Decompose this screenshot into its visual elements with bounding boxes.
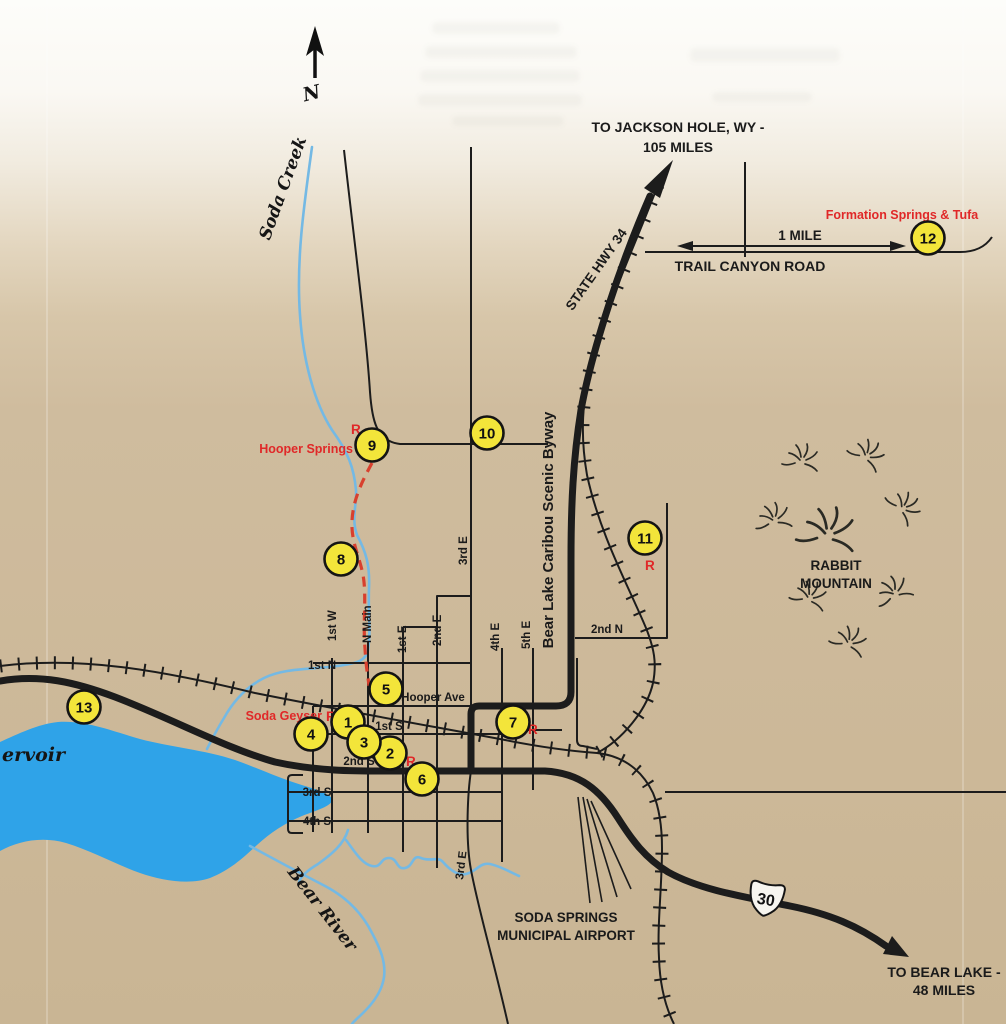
marker-11: 11	[629, 522, 662, 555]
jackson-hole-label-1: TO JACKSON HOLE, WY -	[592, 119, 765, 135]
street-label-1st-e: 1st E	[397, 625, 409, 653]
scale-arrow-left	[677, 241, 693, 251]
soda-springs-map: N 30 TO JACKSON HOLE, WY - 105 MILES TO …	[0, 0, 1006, 1024]
bear-lake-label-1: TO BEAR LAKE -	[887, 964, 1001, 980]
street-label-n-main: N Main	[362, 605, 374, 643]
hooper-springs-road	[344, 150, 548, 444]
street-label-2nd-n: 2nd N	[591, 624, 623, 636]
reservoir-label: ervoir	[2, 744, 67, 766]
street-label-1st-n: 1st N	[308, 660, 336, 672]
marker-5: 5	[370, 673, 403, 706]
bear-lake-label-2: 48 MILES	[913, 982, 975, 998]
marker-4: 4	[295, 718, 328, 751]
north-arrow: N	[300, 26, 324, 107]
marker-3: 3	[348, 726, 381, 759]
rabbit-mountain-marks	[751, 433, 925, 657]
byway-label: Bear Lake Caribou Scenic Byway	[540, 411, 557, 648]
scale-arrow-right	[890, 241, 906, 251]
map-canvas: N 30 TO JACKSON HOLE, WY - 105 MILES TO …	[0, 0, 1006, 1024]
street-label-2nd-e: 2nd E	[432, 614, 444, 646]
marker-6: 6	[406, 763, 439, 796]
street-label-1st-w: 1st W	[327, 610, 339, 641]
svg-text:13: 13	[76, 700, 93, 717]
bear-lake-arrowhead	[883, 936, 909, 957]
trail-canyon-road-label: TRAIL CANYON ROAD	[675, 258, 826, 274]
marker-9: 9	[356, 429, 389, 462]
svg-text:5: 5	[382, 682, 390, 699]
street-label-3rd-e-north: 3rd E	[458, 536, 470, 565]
airport-runways	[578, 797, 631, 903]
street-label-5th-e: 5th E	[521, 621, 533, 649]
svg-text:6: 6	[418, 772, 426, 789]
street-label-4th-s: 4th S	[303, 816, 331, 828]
svg-text:1: 1	[344, 715, 352, 732]
svg-text:8: 8	[337, 552, 345, 569]
creek-meander	[346, 840, 519, 876]
byway-highway	[471, 196, 650, 771]
svg-text:4: 4	[307, 727, 316, 744]
street-label-3rd-e-south: 3rd E	[454, 850, 469, 880]
airport-label-1: SODA SPRINGS	[514, 910, 617, 925]
svg-text:11: 11	[637, 531, 653, 548]
formation-springs-label: Formation Springs & Tufa	[826, 208, 980, 222]
us30-shield: 30	[746, 880, 785, 919]
rabbit-mountain-label-2: MOUNTAIN	[800, 576, 872, 591]
minor-roads	[288, 147, 1006, 1024]
svg-text:9: 9	[368, 438, 376, 455]
hooper-springs-label: Hooper Springs	[259, 442, 353, 456]
rabbit-mountain-label-1: RABBIT	[811, 558, 863, 573]
airport-label-2: MUNICIPAL AIRPORT	[497, 928, 636, 943]
north-label: N	[300, 81, 324, 107]
marker-12: 12	[912, 222, 945, 255]
svg-text:12: 12	[920, 231, 937, 248]
bear-river-label: Bear River	[282, 862, 361, 956]
restroom-mark-11: R	[645, 558, 655, 573]
jackson-arrowhead	[644, 160, 673, 198]
marker-13: 13	[68, 691, 101, 724]
marker-10: 10	[471, 417, 504, 450]
jackson-hole-label-2: 105 MILES	[643, 139, 713, 155]
marker-8: 8	[325, 543, 358, 576]
svg-text:7: 7	[509, 715, 517, 732]
us30-shield-number: 30	[756, 891, 777, 911]
poi-markers: 1 2 3 4 5 6 7 8 9 10 11 12 13	[68, 222, 945, 796]
bear-river-line	[250, 846, 384, 1024]
one-mile-label: 1 MILE	[778, 228, 822, 243]
marker-7: 7	[497, 706, 530, 739]
svg-text:3: 3	[360, 735, 368, 752]
street-label-4th-e: 4th E	[490, 623, 502, 651]
scan-ghost-text	[418, 22, 840, 126]
street-label-3rd-s: 3rd S	[303, 787, 332, 799]
svg-text:10: 10	[479, 426, 496, 443]
svg-text:2: 2	[386, 746, 394, 763]
east-connector-road	[577, 658, 597, 749]
street-label-hooper-ave: Hooper Ave	[401, 692, 465, 704]
street-label-1st-s: 1st S	[375, 721, 403, 733]
